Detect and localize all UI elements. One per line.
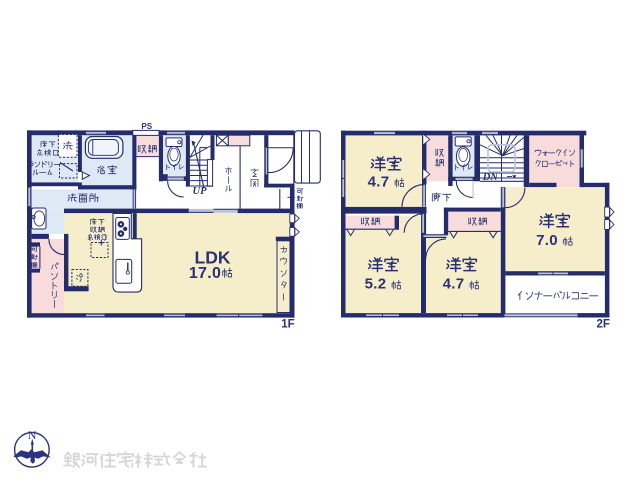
- svg-text:7.0: 7.0: [536, 232, 558, 249]
- svg-text:4.7: 4.7: [443, 276, 465, 293]
- svg-text:UP: UP: [193, 186, 208, 197]
- svg-text:): ): [104, 234, 106, 241]
- svg-text:2F: 2F: [596, 319, 609, 331]
- svg-text:PS: PS: [141, 122, 152, 131]
- svg-text:4.7: 4.7: [368, 173, 390, 190]
- svg-text:DN: DN: [482, 172, 499, 183]
- svg-text:5.2: 5.2: [365, 276, 387, 293]
- svg-text:1F: 1F: [281, 319, 294, 331]
- svg-text:17.0: 17.0: [189, 265, 221, 282]
